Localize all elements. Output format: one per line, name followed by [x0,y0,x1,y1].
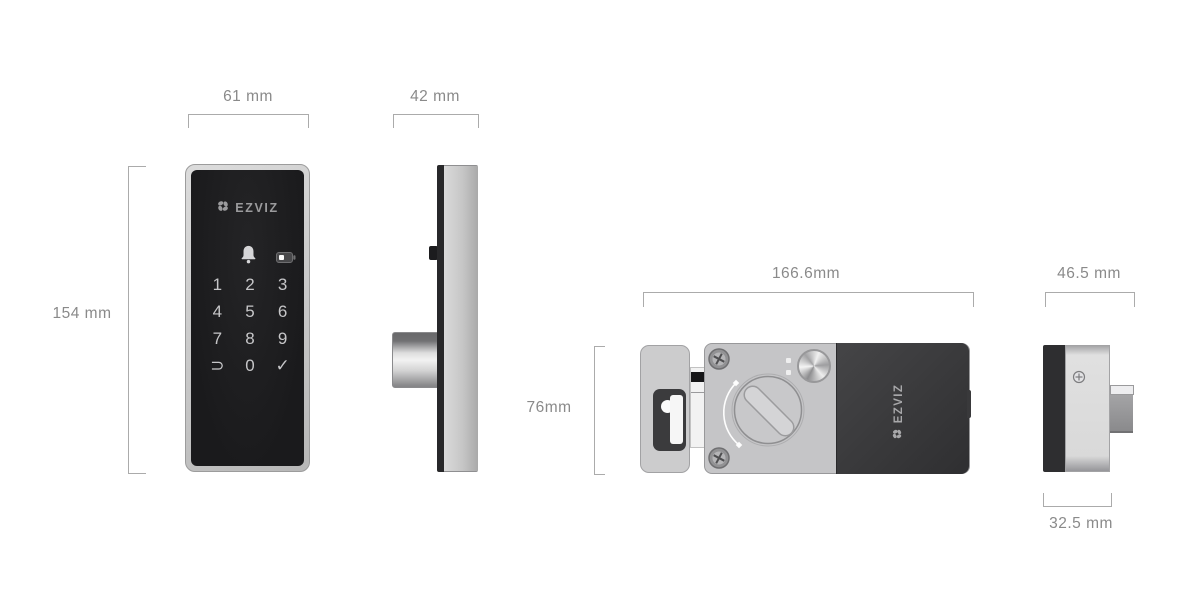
bolt-tab [691,372,705,382]
status-row [191,242,304,268]
key-0: 0 [234,352,267,379]
keypad: 1 2 3 4 5 6 7 8 9 ⊃ 0 ✓ [201,271,299,379]
ezviz-flower-icon [216,199,230,218]
key-1: 1 [201,271,234,298]
bolt-channel-line [691,392,705,393]
key-6: 6 [266,298,299,325]
battery-icon [276,250,296,261]
front-unit-side-view [437,165,478,472]
strike-opening [670,395,683,444]
battery-cover-latch-tab [967,390,971,418]
interior-side-cover-edge [1043,345,1065,472]
detail-overlay [0,0,1200,600]
deadbolt-top [1110,385,1134,395]
deadbolt [1110,395,1133,433]
side-depth-bracket [393,114,479,128]
product-dimensions-diagram: 61 mm 42 mm 154 mm 166.6mm 76mm 46.5 mm … [0,0,1200,600]
strike-plate [640,345,690,473]
front-brand-logo: EZVIZ [191,200,304,216]
interior-side-depth-bracket [1043,493,1112,507]
front-keypad-unit: EZVIZ 1 2 [185,164,310,472]
strike-slot [653,389,686,451]
interior-height-label: 76mm [499,399,599,417]
key-confirm: ✓ [266,352,299,379]
front-width-bracket [188,114,309,128]
side-housing [444,165,478,472]
front-touch-panel: EZVIZ 1 2 [191,170,304,466]
interior-width-bracket [643,292,974,307]
interior-side-width-label: 46.5 mm [1029,265,1149,283]
interior-side-width-bracket [1045,292,1135,307]
front-width-label: 61 mm [188,88,308,106]
interior-side-depth-label: 32.5 mm [1021,515,1141,533]
interior-height-bracket [594,346,605,475]
interior-width-label: 166.6mm [716,265,896,283]
key-4: 4 [201,298,234,325]
front-height-label: 154 mm [32,305,132,323]
key-back: ⊃ [201,352,234,379]
key-2: 2 [234,271,267,298]
interior-brand-text: EZVIZ [893,384,905,424]
ezviz-flower-icon [890,428,908,440]
interior-brand-logo: EZVIZ [891,362,907,462]
front-height-bracket [128,166,146,474]
front-brand-text: EZVIZ [235,201,278,215]
side-front-edge [437,165,444,472]
lock-cylinder-side [392,332,438,388]
key-3: 3 [266,271,299,298]
key-5: 5 [234,298,267,325]
doorbell-icon [238,243,259,267]
side-depth-label: 42 mm [375,88,495,106]
interior-side-housing [1065,345,1110,472]
privacy-knob [797,349,831,383]
key-8: 8 [234,325,267,352]
key-9: 9 [266,325,299,352]
key-7: 7 [201,325,234,352]
